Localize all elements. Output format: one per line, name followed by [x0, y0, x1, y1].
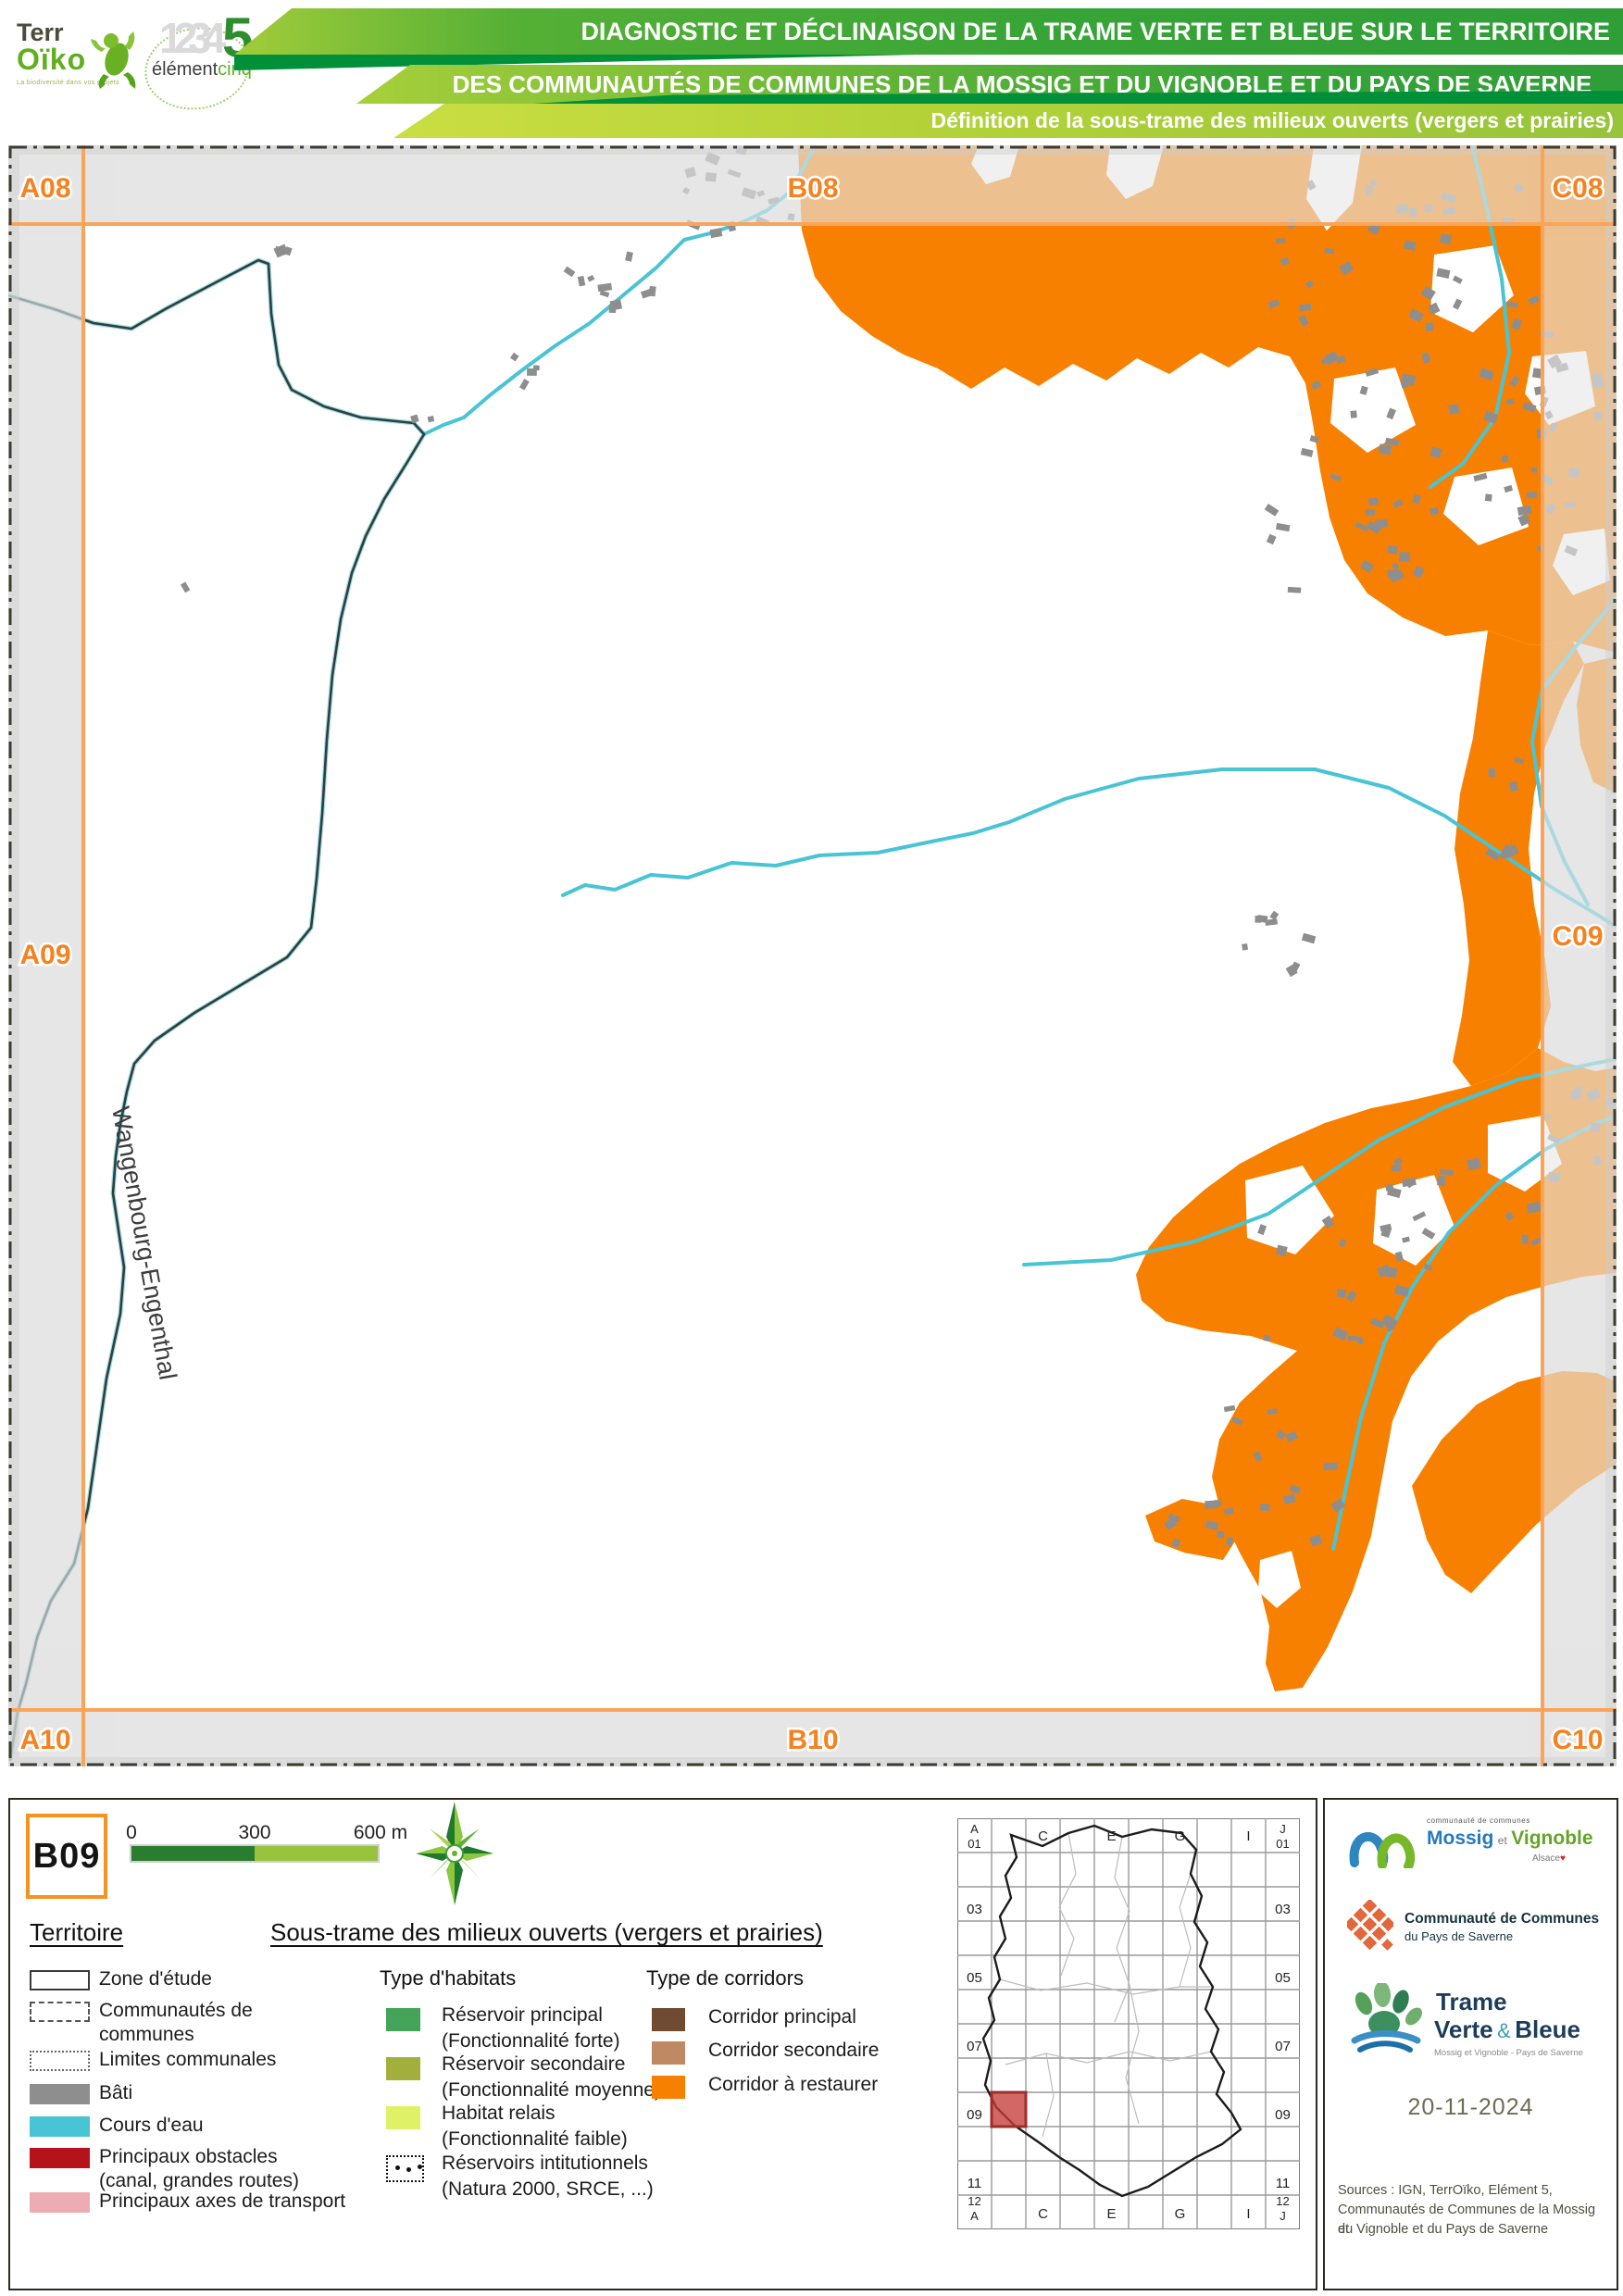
tvb-paw-icon: [1347, 1983, 1427, 2057]
cours-eau-label: Cours d'eau: [99, 2114, 204, 2138]
corridor-restaurer-label: Corridor à restaurer: [708, 2073, 878, 2097]
map-sheet-b09: A08 B08 C08 A09 C09 A10 B10 C10 Wangenbo…: [8, 145, 1617, 1766]
obstacles-swatch: [30, 2148, 90, 2168]
reservoirs-institutionnels-label: Réservoirs intitutionnels: [442, 2152, 648, 2176]
index-row-09-left: 09: [967, 2107, 982, 2123]
saverne-line-1: Communauté de Communes: [1405, 1911, 1599, 1928]
habitat-relais-swatch: [386, 2106, 420, 2129]
mossig-m-icon: [1347, 1816, 1421, 1868]
bati-swatch: [30, 2084, 90, 2104]
scale-bar-left-half: [131, 1846, 255, 1861]
index-label-br-num: 12: [1276, 2194, 1289, 2208]
index-label-tr-letter: J: [1280, 1822, 1286, 1836]
page: { "colors":{"accent_orange":"#F58220","g…: [0, 0, 1623, 2296]
index-row-07-left: 07: [967, 2039, 982, 2054]
scale-bar: [131, 1846, 378, 1861]
habitats-title: Type d'habitats: [380, 1966, 516, 1990]
mossig-vignoble-logo: communauté de communes Mossig et Vignobl…: [1347, 1816, 1606, 1872]
index-label-tl-letter: A: [970, 1822, 979, 1836]
soustrame-title: Sous-trame des milieux ouverts (vergers …: [270, 1918, 823, 1947]
pays-saverne-logo: Communauté de Communes du Pays de Savern…: [1347, 1900, 1606, 1955]
reservoir-secondaire-swatch: [386, 2057, 420, 2080]
subtitle-bar: Définition de la sous-trame des milieux …: [393, 104, 1623, 138]
index-col-e-bottom: E: [1106, 2206, 1116, 2222]
header: Terr Oïko La biodiversité dans vos proje…: [0, 0, 1623, 141]
scale-tick-0: 0: [94, 1822, 169, 1844]
corridor-principal-swatch: [652, 2008, 685, 2031]
communautes-swatch: [30, 2002, 90, 2022]
grid-label-c08: C08: [1552, 173, 1603, 204]
index-row-07-right: 07: [1275, 2039, 1291, 2054]
index-label-bl-num: 12: [968, 2194, 980, 2208]
credits-panel: communauté de communes Mossig et Vignobl…: [1323, 1798, 1618, 2290]
legend-panel: B09 0 300 600 m Territoire Sous-trame de…: [8, 1798, 1317, 2290]
index-col-c-top: C: [1038, 1828, 1048, 1844]
mossig-region-text: Alsace: [1532, 1853, 1560, 1864]
grid-label-a08: A08: [19, 173, 70, 204]
dots-pattern-icon: [395, 2165, 400, 2170]
index-col-i-top: I: [1246, 1828, 1250, 1844]
index-row-05-right: 05: [1275, 1970, 1291, 1986]
index-row-11-right: 11: [1276, 2176, 1291, 2191]
alsace-heart-icon: ♥: [1560, 1853, 1566, 1864]
limites-swatch: [30, 2051, 90, 2071]
tvb-subtitle: Mossig et Vignoble - Pays de Saverne: [1434, 2048, 1583, 2058]
scale-tick-300: 300: [218, 1822, 292, 1844]
corridor-secondaire-label: Corridor secondaire: [708, 2039, 879, 2063]
saverne-diamonds-icon: [1347, 1900, 1393, 1953]
grid-label-b08: B08: [787, 173, 838, 204]
reservoir-principal-label-2: (Fonctionnalité forte): [442, 2029, 620, 2053]
terroiko-logo: Terr Oïko La biodiversité dans vos proje…: [17, 20, 137, 122]
grid-label-c09: C09: [1552, 921, 1603, 952]
index-label-tr-num: 01: [1276, 1837, 1289, 1851]
index-row-05-left: 05: [967, 1970, 982, 1986]
title-bar-1: DIAGNOSTIC ET DÉCLINAISON DE LA TRAME VE…: [234, 8, 1623, 55]
communautes-label: Communautés de: [99, 1999, 253, 2023]
index-label-br-letter: J: [1280, 2209, 1286, 2223]
reservoirs-institutionnels-label-2: (Natura 2000, SRCE, ...): [442, 2177, 654, 2202]
reservoir-secondaire-label-2: (Fonctionnalité moyenne): [442, 2078, 661, 2103]
tvb-verte: Verte: [1434, 2015, 1493, 2043]
grid-label-c10: C10: [1552, 1725, 1603, 1755]
index-row-03-left: 03: [967, 1902, 982, 1917]
element5-ghost-digits: 1234: [159, 13, 217, 63]
grid-label-a09: A09: [19, 940, 70, 970]
index-col-e-top: E: [1106, 1828, 1116, 1844]
mossig-region: Alsace♥: [1532, 1853, 1566, 1864]
index-row-11-left: 11: [968, 2176, 982, 2191]
corridor-principal-label: Corridor principal: [708, 2005, 856, 2029]
corridor-secondaire-swatch: [652, 2041, 685, 2065]
tvb-line-2: Verte & Bleue: [1434, 2016, 1580, 2044]
index-row-09-right: 09: [1275, 2107, 1291, 2123]
tvb-logo: Trame Verte & Bleue Mossig et Vignoble -…: [1347, 1983, 1606, 2066]
limites-label: Limites communales: [99, 2048, 276, 2072]
tvb-amp: &: [1497, 2019, 1511, 2042]
frog-icon: [89, 26, 143, 91]
tvb-line-1: Trame: [1436, 1989, 1507, 2015]
corridor-restaurer-swatch: [652, 2076, 685, 2099]
sources-line-3: du Vignoble et du Pays de Saverne: [1338, 2220, 1606, 2240]
index-label-tl-num: 01: [968, 1837, 980, 1851]
reservoir-secondaire-label: Réservoir secondaire: [442, 2053, 625, 2077]
zone-etude-label: Zone d'étude: [99, 1967, 212, 1991]
index-row-03-right: 03: [1275, 1902, 1291, 1917]
bati-label: Bâti: [99, 2081, 132, 2105]
saverne-line-2: du Pays de Saverne: [1405, 1929, 1513, 1943]
obstacles-label: Principaux obstacles: [99, 2145, 278, 2169]
grid-label-a10: A10: [19, 1725, 70, 1755]
mossig-et: et: [1498, 1834, 1507, 1847]
map-canvas: A08 B08 C08 A09 C09 A10 B10 C10 Wangenbo…: [8, 145, 1617, 1766]
tvb-bleue: Bleue: [1515, 2015, 1580, 2043]
corridors-title: Type de corridors: [646, 1966, 804, 1990]
mossig-small-text: communauté de communes: [1427, 1816, 1530, 1825]
sources-line-1: Sources : IGN, TerrOïko, Elément 5,: [1338, 2181, 1606, 2201]
element5-name-1: élément: [152, 59, 218, 80]
reservoir-principal-label: Réservoir principal: [442, 2003, 603, 2028]
reservoirs-institutionnels-swatch: [386, 2155, 424, 2182]
scale-bar-right-half: [255, 1846, 378, 1861]
index-current-sheet-highlight: [992, 2092, 1026, 2127]
index-map: A 01 J 01 03 05 07 09 11 03 05 07 09 11 …: [957, 1818, 1300, 2229]
index-col-g-top: G: [1175, 1828, 1186, 1844]
cours-eau-swatch: [30, 2116, 90, 2137]
map-date: 20-11-2024: [1325, 2094, 1617, 2121]
habitat-relais-label-2: (Fonctionnalité faible): [442, 2128, 628, 2152]
axes-transport-label: Principaux axes de transport: [99, 2190, 345, 2214]
index-col-c-bottom: C: [1038, 2206, 1048, 2222]
mossig-name-1: Mossig: [1427, 1828, 1493, 1849]
mossig-name-2: Vignoble: [1511, 1828, 1592, 1849]
axes-transport-swatch: [30, 2192, 90, 2213]
territoire-title: Territoire: [30, 1918, 123, 1947]
grid-label-b10: B10: [787, 1725, 838, 1755]
reservoir-principal-swatch: [386, 2008, 420, 2031]
zone-etude-swatch: [30, 1970, 90, 1990]
habitat-relais-label: Habitat relais: [442, 2102, 556, 2126]
index-label-bl-letter: A: [970, 2209, 979, 2223]
compass-rose-icon: [404, 1800, 506, 1915]
index-col-g-bottom: G: [1175, 2206, 1186, 2222]
communautes-label-2: communes: [99, 2023, 194, 2047]
mossig-name: Mossig et Vignoble: [1427, 1828, 1593, 1850]
index-col-i-bottom: I: [1246, 2206, 1250, 2222]
